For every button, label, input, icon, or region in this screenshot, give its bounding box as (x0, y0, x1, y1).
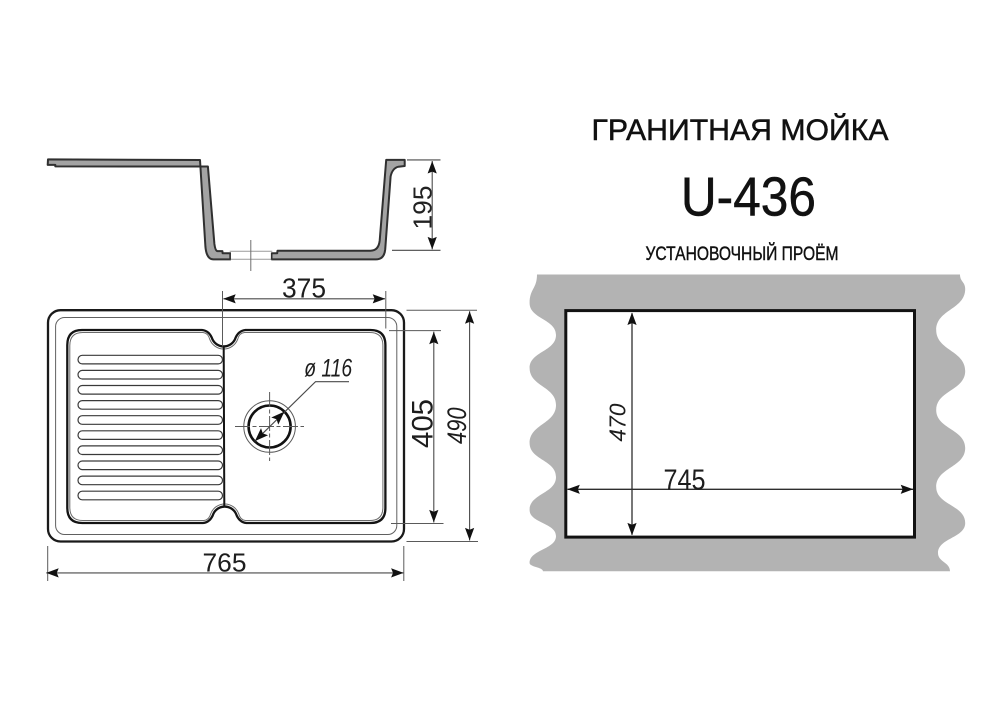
svg-text:405: 405 (407, 399, 440, 448)
svg-text:765: 765 (203, 550, 247, 578)
svg-text:375: 375 (282, 273, 326, 304)
svg-text:745: 745 (664, 465, 706, 497)
svg-text:УСТАНОВОЧНЫЙ ПРОЁМ: УСТАНОВОЧНЫЙ ПРОЁМ (646, 243, 839, 265)
svg-text:ГРАНИТНАЯ МОЙКА: ГРАНИТНАЯ МОЙКА (592, 113, 889, 147)
svg-text:U-436: U-436 (681, 165, 816, 227)
svg-text:ø 116: ø 116 (304, 355, 352, 383)
svg-text:470: 470 (605, 404, 631, 442)
svg-text:490: 490 (442, 408, 472, 445)
svg-text:195: 195 (408, 186, 438, 230)
